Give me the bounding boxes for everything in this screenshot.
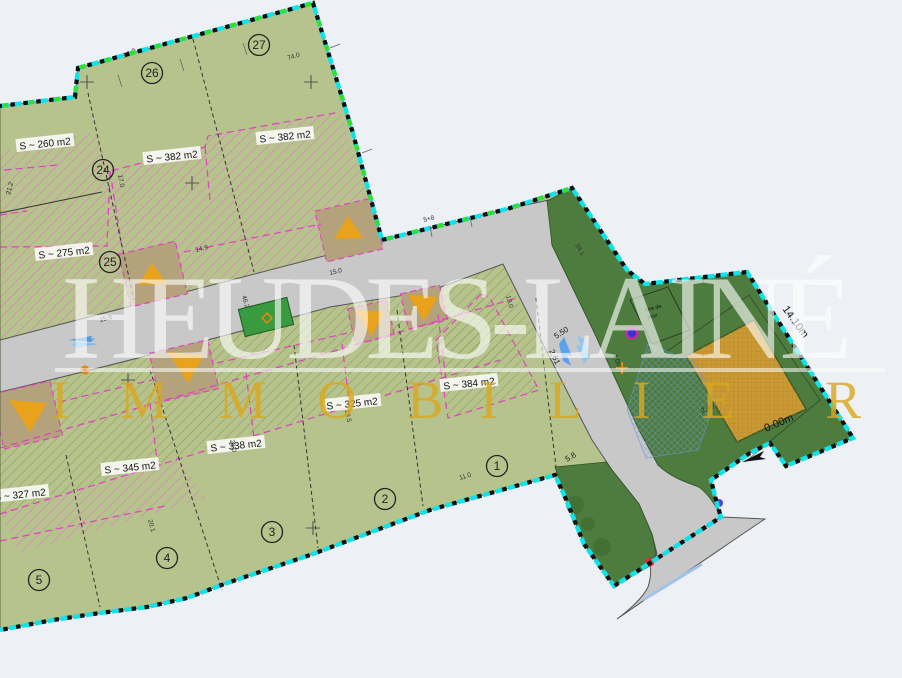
svg-text:27: 27 <box>252 38 266 52</box>
svg-text:IMMOBILIER: IMMOBILIER <box>51 370 902 430</box>
svg-text:4: 4 <box>164 551 171 565</box>
svg-text:5: 5 <box>36 573 43 587</box>
svg-text:3: 3 <box>269 525 276 539</box>
svg-text:24: 24 <box>96 163 110 177</box>
svg-text:26: 26 <box>145 66 159 80</box>
svg-text:2: 2 <box>382 492 389 506</box>
svg-text:HEUDES-LAINÉ: HEUDES-LAINÉ <box>62 251 847 384</box>
svg-text:1: 1 <box>494 459 501 473</box>
